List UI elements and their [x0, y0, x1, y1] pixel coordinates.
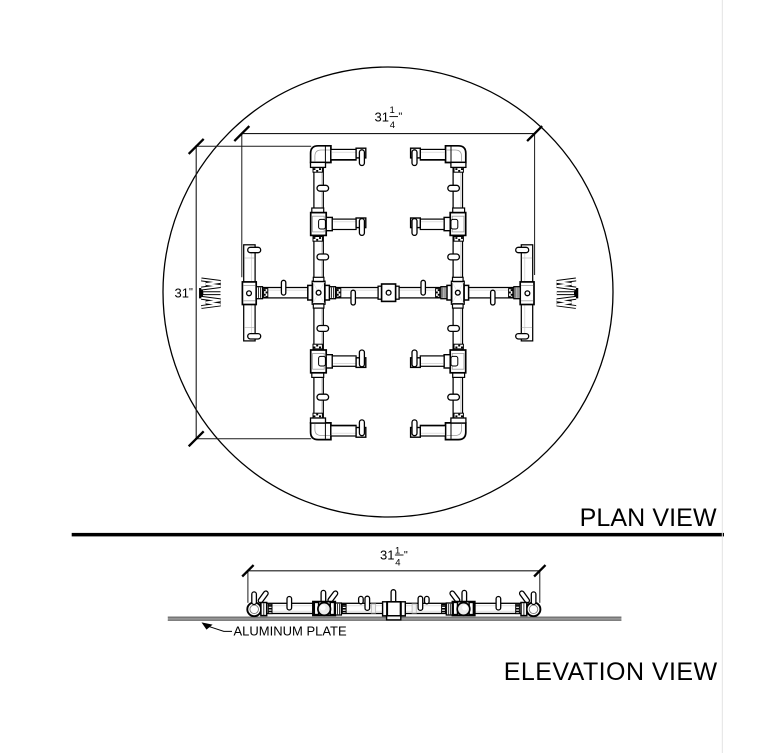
- svg-text:ALUMINUM PLATE: ALUMINUM PLATE: [234, 624, 347, 639]
- svg-text:ELEVATION VIEW: ELEVATION VIEW: [504, 658, 718, 686]
- svg-text:": ": [189, 287, 193, 299]
- svg-text:4: 4: [390, 120, 395, 131]
- svg-text:PLAN VIEW: PLAN VIEW: [580, 504, 717, 532]
- svg-text:": ": [404, 549, 408, 561]
- svg-text:31: 31: [380, 548, 394, 563]
- svg-text:": ": [398, 111, 402, 123]
- svg-text:4: 4: [395, 558, 400, 569]
- svg-text:31: 31: [175, 286, 189, 301]
- svg-text:1: 1: [390, 105, 395, 116]
- svg-text:31: 31: [375, 110, 389, 125]
